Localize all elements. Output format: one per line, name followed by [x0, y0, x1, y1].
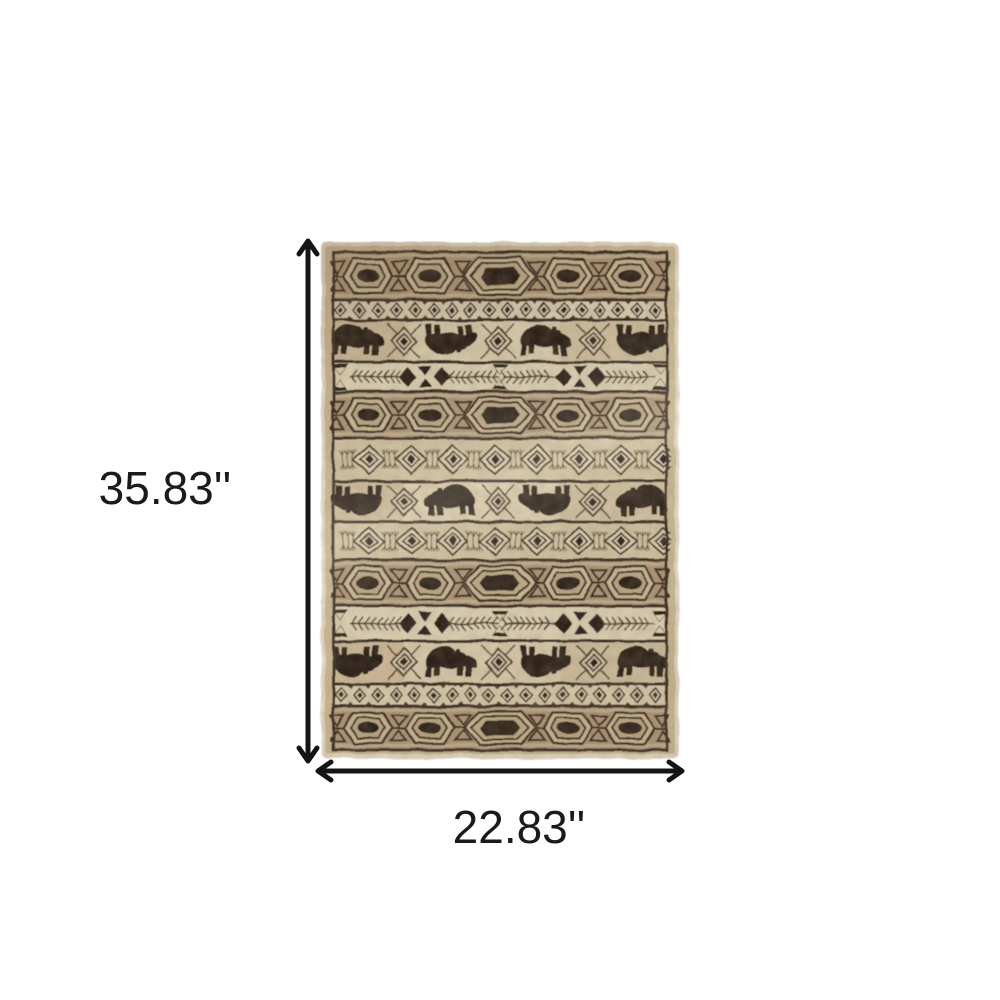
- svg-text:22.83'': 22.83'': [453, 801, 586, 853]
- svg-text:35.83'': 35.83'': [99, 462, 232, 514]
